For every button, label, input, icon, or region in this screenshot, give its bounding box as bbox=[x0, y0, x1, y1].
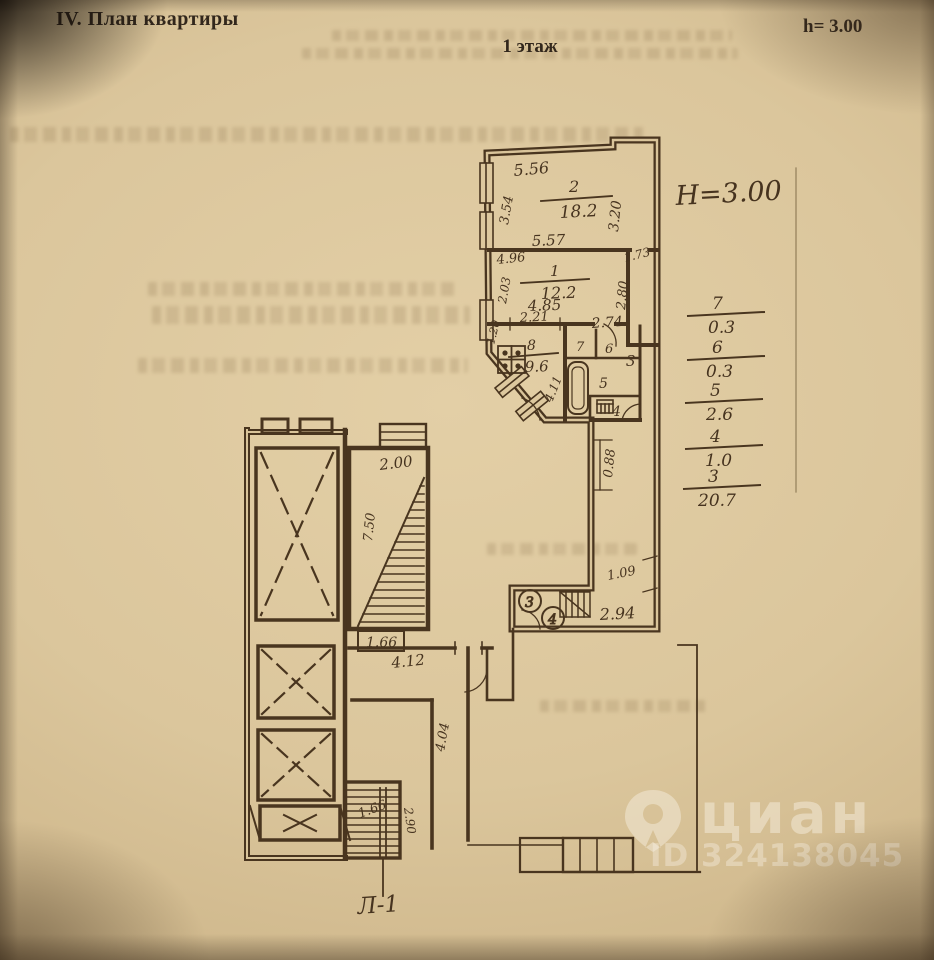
utility-hatch bbox=[560, 592, 590, 617]
dim-stair-top: 2.00 bbox=[377, 452, 414, 474]
room5-label: 5 bbox=[599, 376, 608, 392]
dim-room2-top: 5.56 bbox=[513, 158, 550, 180]
sink-icon bbox=[597, 400, 613, 413]
room6-label: 6 bbox=[605, 342, 613, 357]
fixture-marker-4: 4 bbox=[542, 607, 564, 629]
interior-walls bbox=[489, 250, 657, 420]
dim-room2-right: 3.20 bbox=[606, 200, 625, 233]
legend-room-6: 6 bbox=[712, 338, 723, 358]
legend-area-6: 0.3 bbox=[706, 362, 733, 382]
watermark-id: ID 324138045 bbox=[650, 838, 904, 874]
left-wing-outline bbox=[247, 419, 345, 858]
room2-number: 2 bbox=[568, 177, 579, 196]
dim-room1-left: 2.03 bbox=[495, 275, 514, 305]
dim-room1-right: 2.80 bbox=[614, 280, 632, 311]
legend-room-3: 3 bbox=[708, 467, 719, 487]
dim-room2-bottom: 5.57 bbox=[532, 231, 566, 250]
dim-stair-flight: 7.50 bbox=[361, 512, 379, 542]
dim-niche-top: 1.09 bbox=[606, 564, 637, 584]
dim-kitchen-diag: 4.11 bbox=[541, 374, 564, 405]
dim-corridor-top: 2.74 bbox=[590, 314, 623, 332]
fixture-marker-3: 3 bbox=[519, 590, 541, 612]
room7-label: 7 bbox=[576, 340, 585, 355]
height-annotation: H=3.00 bbox=[674, 175, 783, 212]
legend-area-7: 0.3 bbox=[708, 318, 735, 338]
dim-room1-right-top: 1.73 bbox=[622, 245, 652, 265]
lower-staircase bbox=[345, 782, 400, 896]
kitchen-area: 9.6 bbox=[525, 357, 550, 376]
page-title: IV. План квартиры bbox=[56, 8, 239, 31]
bathtub-icon bbox=[568, 362, 588, 414]
room1-number: 1 bbox=[550, 262, 560, 280]
svg-text:3: 3 bbox=[525, 595, 534, 611]
dim-room2-left: 3.54 bbox=[497, 195, 517, 226]
legend-area-5: 2.6 bbox=[705, 405, 733, 425]
stair-id-label: Л-1 bbox=[356, 891, 400, 920]
dim-corridor-right: 0.88 bbox=[601, 448, 619, 478]
ceiling-height-note: h= 3.00 bbox=[803, 16, 862, 38]
legend-area-3: 20.7 bbox=[697, 491, 736, 511]
dim-stair-bottom: 1.66 bbox=[366, 635, 397, 651]
room2-area: 18.2 bbox=[559, 201, 598, 223]
dim-lower-stair-right: 2.90 bbox=[401, 805, 419, 835]
floor-label: 1 этаж bbox=[380, 36, 680, 58]
dim-hall-top: 4.12 bbox=[390, 651, 426, 672]
dim-niche-bottom: 2.94 bbox=[598, 603, 636, 624]
legend-room-4: 4 bbox=[709, 427, 721, 447]
dim-hall-corridor: 4.04 bbox=[433, 722, 453, 754]
legend-room-7: 7 bbox=[712, 294, 723, 314]
room3-label: 3 bbox=[626, 352, 636, 370]
dim-room1-top: 4.96 bbox=[495, 250, 526, 268]
svg-text:4: 4 bbox=[547, 612, 557, 628]
legend-room-5: 5 bbox=[710, 381, 721, 401]
room4-label: 4 bbox=[611, 404, 621, 420]
dim-kitchen-top: 2.21 bbox=[518, 309, 549, 326]
shaft-room bbox=[250, 448, 350, 840]
kitchen-number: 8 bbox=[527, 338, 536, 354]
